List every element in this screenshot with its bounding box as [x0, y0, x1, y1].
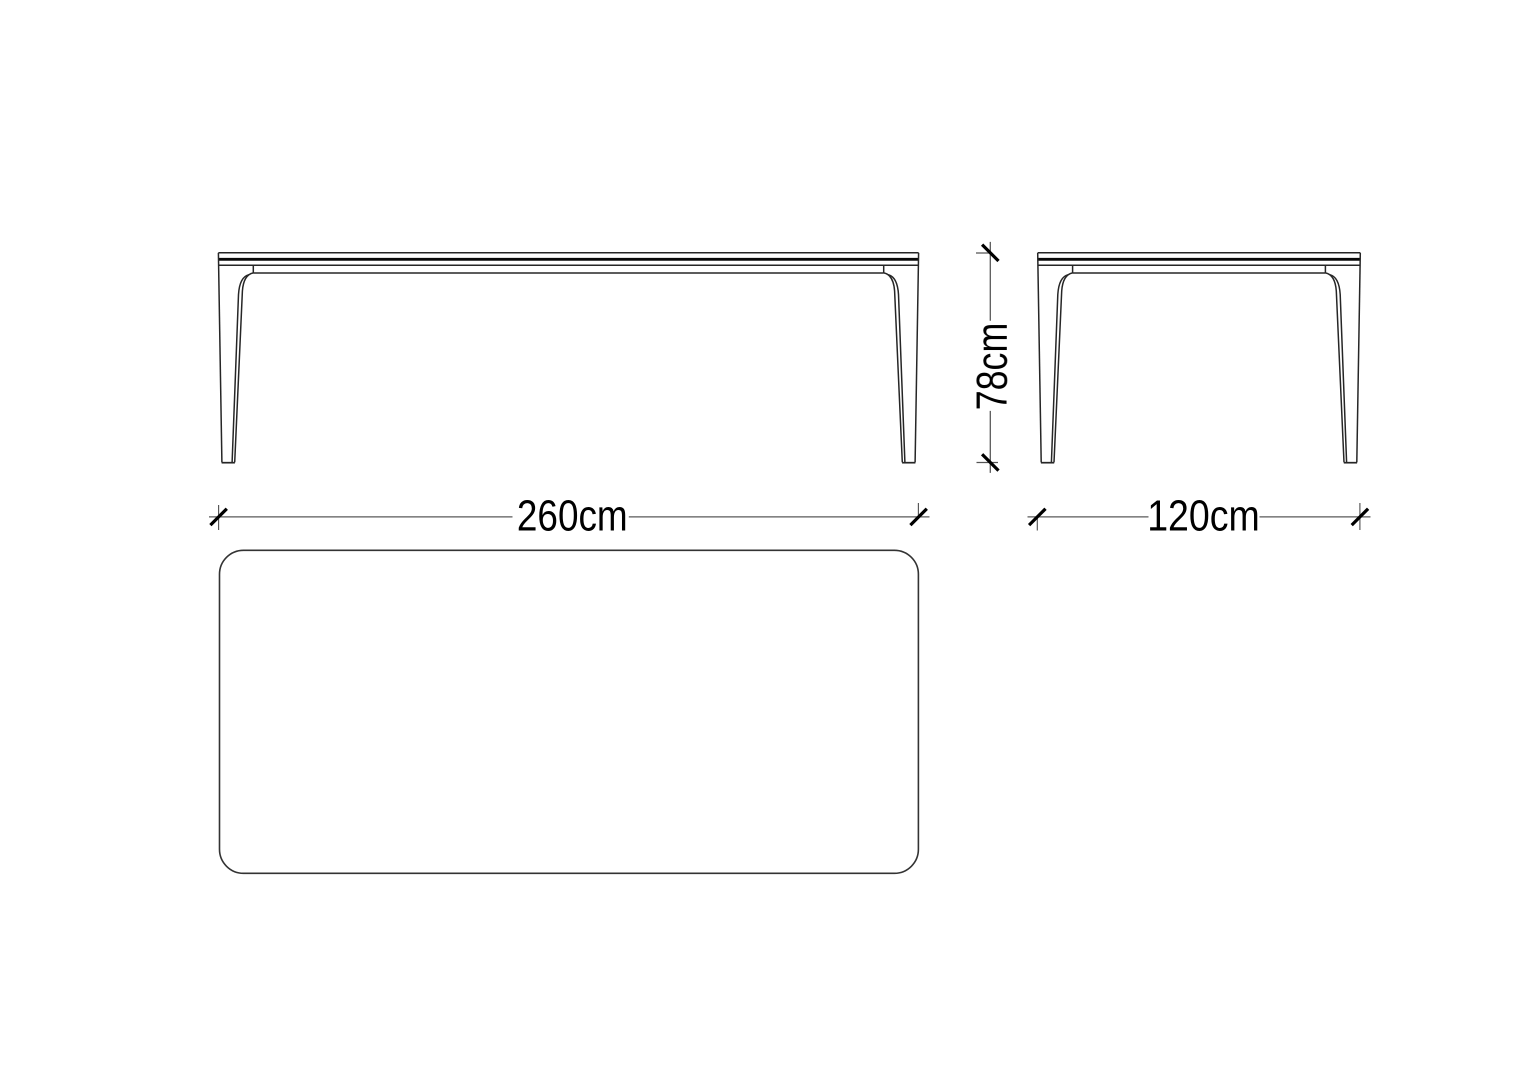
- svg-text:78cm: 78cm: [969, 323, 1017, 411]
- svg-text:260cm: 260cm: [517, 493, 628, 541]
- svg-text:120cm: 120cm: [1147, 493, 1260, 541]
